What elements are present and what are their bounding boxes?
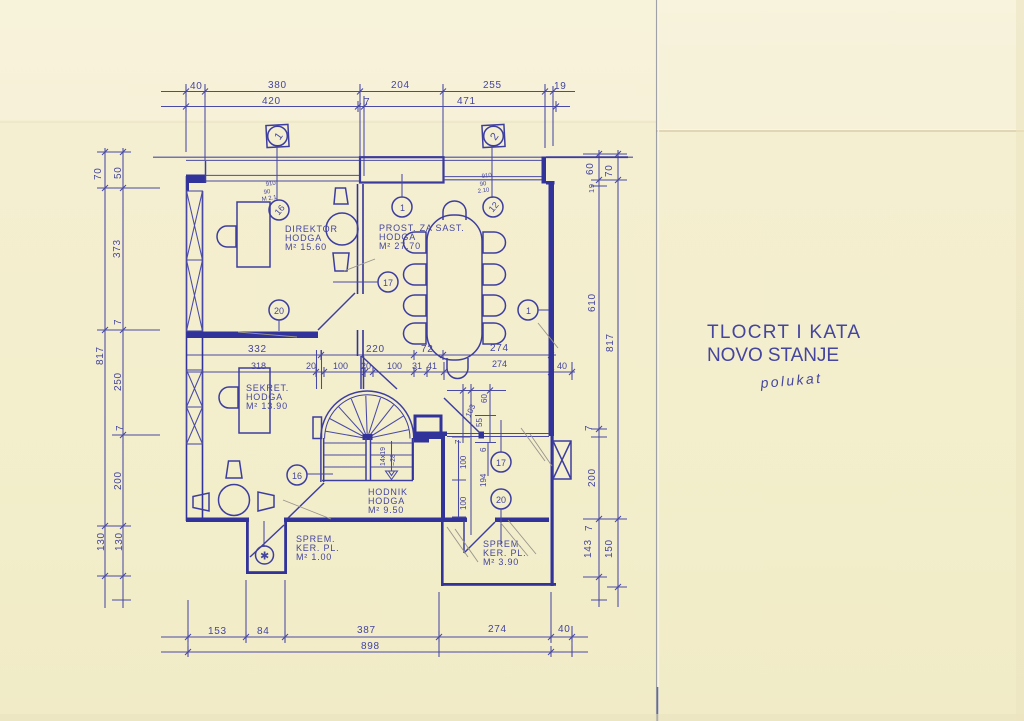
svg-text:130: 130	[96, 532, 107, 551]
svg-text:41: 41	[427, 361, 437, 371]
svg-text:84: 84	[257, 626, 270, 637]
svg-text:14x19: 14x19	[380, 447, 387, 466]
svg-text:150: 150	[604, 539, 615, 558]
svg-text:M² 15.60: M² 15.60	[285, 242, 327, 252]
svg-text:70: 70	[93, 167, 104, 180]
svg-text:6: 6	[479, 447, 488, 452]
svg-text:19: 19	[554, 81, 567, 92]
svg-text:M² 13.90: M² 13.90	[246, 401, 288, 411]
svg-text:60: 60	[585, 162, 596, 175]
svg-text:17: 17	[383, 278, 393, 288]
svg-text:380: 380	[268, 80, 287, 91]
svg-text:7: 7	[584, 425, 595, 431]
svg-text:17: 17	[496, 458, 506, 468]
svg-text:274: 274	[488, 624, 507, 635]
svg-text:471: 471	[457, 96, 476, 107]
svg-text:420: 420	[262, 96, 281, 107]
svg-text:1: 1	[526, 306, 531, 316]
svg-text:M² 3.90: M² 3.90	[483, 557, 519, 567]
svg-text:40: 40	[557, 361, 567, 371]
svg-text:332: 332	[248, 344, 267, 355]
svg-text:610: 610	[587, 293, 598, 312]
svg-text:M² 27.70: M² 27.70	[379, 241, 421, 251]
svg-text:7: 7	[113, 319, 124, 325]
svg-text:153: 153	[208, 626, 227, 637]
svg-text:M² 1.00: M² 1.00	[296, 552, 332, 562]
svg-text:255: 255	[483, 80, 502, 91]
svg-text:70: 70	[604, 164, 615, 177]
svg-text:130: 130	[114, 532, 125, 551]
svg-text:194: 194	[479, 473, 488, 487]
svg-text:220: 220	[366, 344, 385, 355]
svg-text:7: 7	[584, 525, 595, 531]
svg-text:19: 19	[587, 183, 596, 193]
svg-text:31: 31	[412, 361, 422, 371]
svg-text:373: 373	[112, 239, 123, 258]
svg-text:1: 1	[400, 203, 405, 213]
svg-text:200: 200	[587, 468, 598, 487]
svg-text:50: 50	[113, 166, 124, 179]
svg-text:100: 100	[387, 361, 402, 371]
svg-text:250: 250	[113, 372, 124, 391]
svg-text:20: 20	[274, 306, 284, 316]
svg-text:817: 817	[605, 333, 616, 352]
svg-text:40: 40	[558, 624, 571, 635]
svg-text:318: 318	[251, 361, 266, 371]
svg-text:M² 9.50: M² 9.50	[368, 505, 404, 515]
svg-text:100: 100	[459, 455, 468, 469]
svg-text:817: 817	[95, 346, 106, 365]
svg-text:60: 60	[480, 394, 489, 403]
svg-text:55: 55	[475, 418, 484, 427]
svg-text:7: 7	[364, 97, 370, 108]
svg-text:=28: =28	[390, 454, 397, 466]
svg-text:20: 20	[496, 495, 506, 505]
svg-text:20: 20	[306, 361, 316, 371]
svg-text:143: 143	[583, 539, 594, 558]
svg-text:100: 100	[459, 496, 468, 510]
svg-text:204: 204	[391, 80, 410, 91]
svg-text:NOVO STANJE: NOVO STANJE	[707, 345, 839, 366]
svg-text:274: 274	[492, 359, 507, 369]
svg-text:7: 7	[115, 425, 126, 431]
svg-text:40: 40	[190, 81, 203, 92]
svg-text:100: 100	[333, 361, 348, 371]
svg-text:✱: ✱	[260, 551, 269, 563]
svg-text:387: 387	[357, 625, 376, 636]
svg-text:16: 16	[292, 471, 302, 481]
svg-text:898: 898	[361, 641, 380, 652]
svg-text:200: 200	[113, 471, 124, 490]
svg-text:TLOCRT I KATA: TLOCRT I KATA	[707, 322, 860, 343]
